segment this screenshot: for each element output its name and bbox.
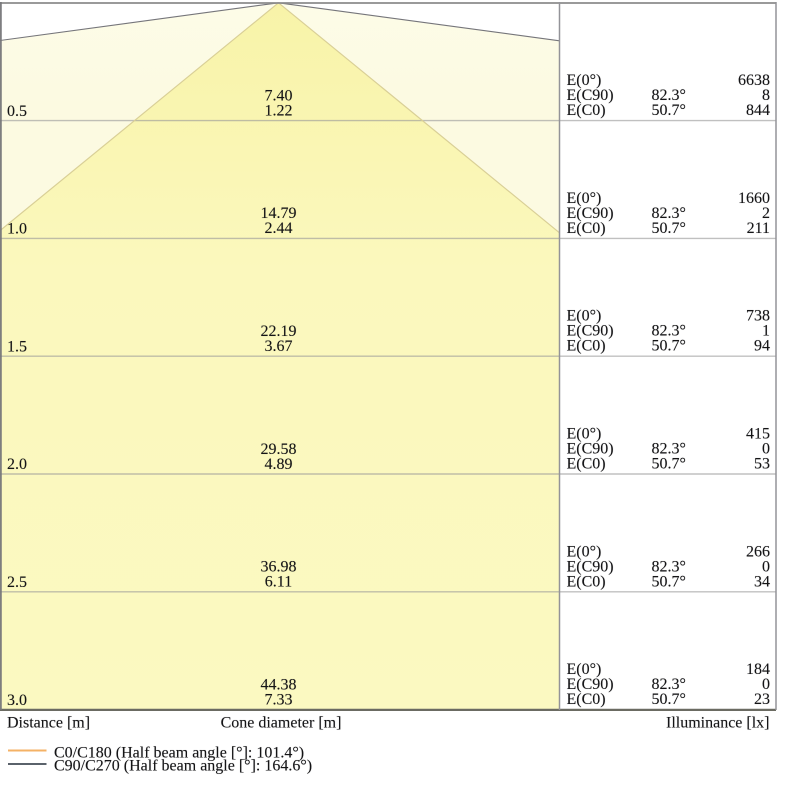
svg-text:50.7°: 50.7° xyxy=(652,573,686,590)
svg-text:0.5: 0.5 xyxy=(7,103,27,120)
svg-text:50.7°: 50.7° xyxy=(652,102,686,119)
svg-text:E(C0): E(C0) xyxy=(567,102,606,119)
svg-text:3.67: 3.67 xyxy=(265,338,293,355)
svg-text:50.7°: 50.7° xyxy=(652,338,686,355)
svg-text:E(C0): E(C0) xyxy=(567,691,606,708)
svg-text:1.22: 1.22 xyxy=(265,102,293,119)
svg-text:6.11: 6.11 xyxy=(265,574,292,591)
svg-text:E(C0): E(C0) xyxy=(567,573,606,590)
svg-text:C90/C270 (Half beam angle [°]:: C90/C270 (Half beam angle [°]: 164.6°) xyxy=(54,758,312,775)
svg-text:211: 211 xyxy=(747,220,770,237)
svg-text:50.7°: 50.7° xyxy=(652,456,686,473)
svg-text:50.7°: 50.7° xyxy=(652,691,686,708)
svg-text:94: 94 xyxy=(754,338,770,355)
svg-text:Distance [m]: Distance [m] xyxy=(7,715,90,732)
svg-text:7.33: 7.33 xyxy=(265,691,293,708)
svg-text:2.0: 2.0 xyxy=(7,456,27,473)
svg-text:3.0: 3.0 xyxy=(7,692,27,709)
svg-text:E(C0): E(C0) xyxy=(567,456,606,473)
svg-text:1.5: 1.5 xyxy=(7,338,27,355)
svg-text:E(C0): E(C0) xyxy=(567,220,606,237)
svg-text:4.89: 4.89 xyxy=(265,456,293,473)
svg-text:53: 53 xyxy=(754,456,770,473)
svg-text:E(C0): E(C0) xyxy=(567,338,606,355)
svg-text:Illuminance [lx]: Illuminance [lx] xyxy=(666,715,770,732)
svg-text:1.0: 1.0 xyxy=(7,221,27,238)
svg-text:844: 844 xyxy=(746,102,770,119)
svg-text:50.7°: 50.7° xyxy=(652,220,686,237)
svg-text:2.5: 2.5 xyxy=(7,574,27,591)
svg-text:34: 34 xyxy=(754,573,770,590)
svg-text:2.44: 2.44 xyxy=(265,220,293,237)
svg-text:Cone diameter [m]: Cone diameter [m] xyxy=(221,715,342,732)
svg-text:23: 23 xyxy=(754,691,770,708)
